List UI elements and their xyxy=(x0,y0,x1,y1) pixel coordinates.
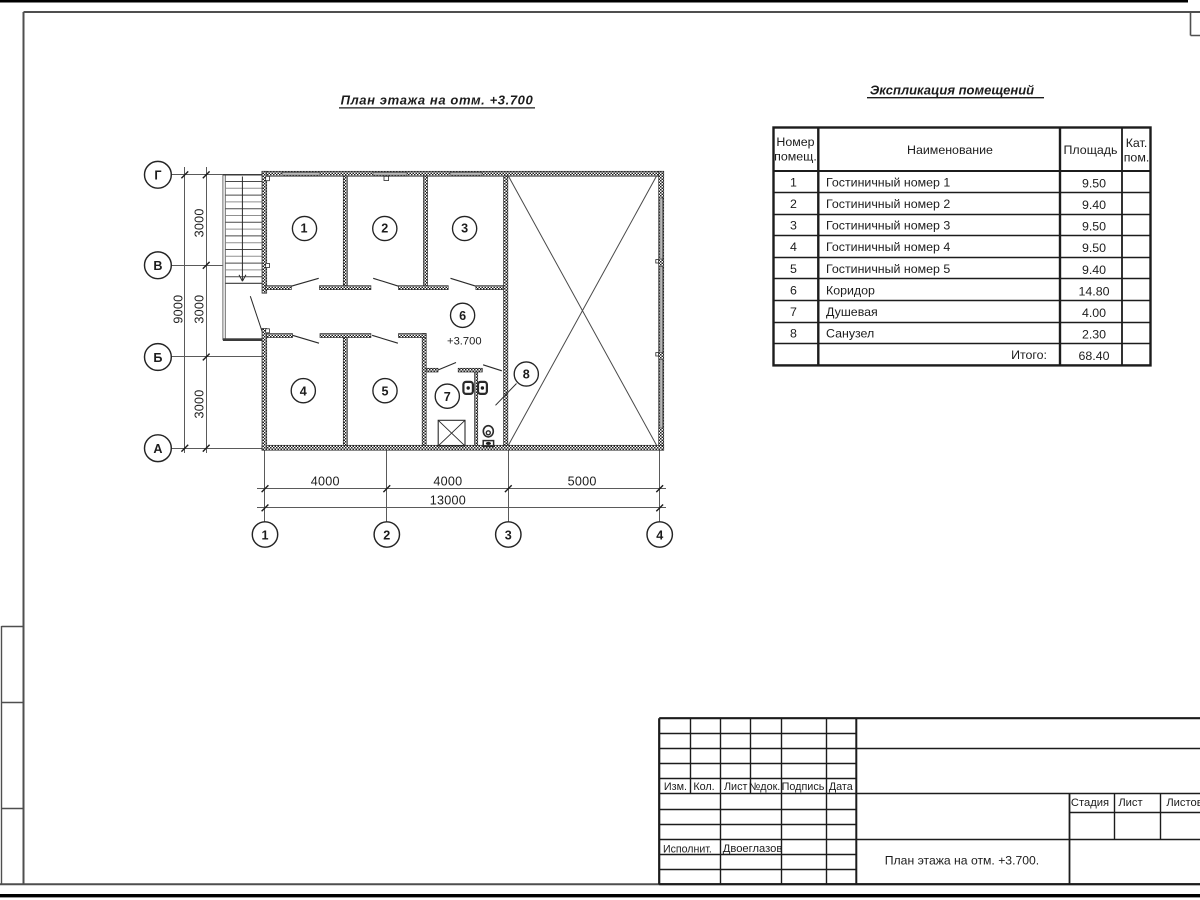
svg-text:6: 6 xyxy=(459,309,466,323)
svg-text:7: 7 xyxy=(790,305,797,319)
svg-text:4000: 4000 xyxy=(311,474,340,488)
svg-text:7: 7 xyxy=(444,390,451,404)
svg-text:9.50: 9.50 xyxy=(1082,220,1106,234)
svg-text:Кат.: Кат. xyxy=(1126,136,1148,150)
svg-text:Исполнит.: Исполнит. xyxy=(663,844,712,856)
svg-text:3000: 3000 xyxy=(192,295,206,324)
svg-text:4: 4 xyxy=(790,240,797,254)
svg-text:Дата: Дата xyxy=(829,781,853,793)
svg-text:5: 5 xyxy=(790,262,797,276)
svg-text:Б: Б xyxy=(153,351,162,365)
svg-text:Подпись: Подпись xyxy=(782,781,825,793)
svg-text:Наименование: Наименование xyxy=(907,143,993,157)
svg-text:68.40: 68.40 xyxy=(1078,349,1109,363)
svg-text:В: В xyxy=(153,259,162,273)
svg-text:Кол.: Кол. xyxy=(693,781,714,793)
svg-text:План этажа на отм. +3.700: План этажа на отм. +3.700 xyxy=(341,93,534,108)
svg-text:3000: 3000 xyxy=(192,208,206,237)
svg-text:Душевая: Душевая xyxy=(826,305,878,319)
svg-text:Лист: Лист xyxy=(724,781,748,793)
svg-text:Гостиничный номер 1: Гостиничный номер 1 xyxy=(826,175,950,189)
svg-text:помещ.: помещ. xyxy=(774,150,817,164)
svg-text:13000: 13000 xyxy=(430,494,466,508)
svg-text:1: 1 xyxy=(300,222,307,236)
svg-text:Номер: Номер xyxy=(776,135,814,149)
svg-text:9.50: 9.50 xyxy=(1082,176,1106,190)
svg-text:№док.: №док. xyxy=(749,781,781,793)
svg-text:2: 2 xyxy=(790,197,797,211)
svg-text:План этажа на отм. +3.700.: План этажа на отм. +3.700. xyxy=(885,854,1039,868)
svg-text:+3.700: +3.700 xyxy=(447,335,482,347)
svg-text:Гостиничный номер 5: Гостиничный номер 5 xyxy=(826,262,950,276)
svg-text:1: 1 xyxy=(790,175,797,189)
svg-text:3: 3 xyxy=(790,219,797,233)
svg-text:8: 8 xyxy=(523,368,530,382)
svg-text:6: 6 xyxy=(790,283,797,297)
svg-text:3: 3 xyxy=(505,528,512,542)
svg-text:2: 2 xyxy=(383,528,390,542)
svg-text:пом.: пом. xyxy=(1124,151,1150,165)
svg-text:9.50: 9.50 xyxy=(1082,241,1106,255)
svg-text:9000: 9000 xyxy=(172,295,186,324)
svg-text:А: А xyxy=(153,442,162,456)
svg-text:Стадия: Стадия xyxy=(1071,797,1109,809)
svg-text:8: 8 xyxy=(790,327,797,341)
svg-text:4.00: 4.00 xyxy=(1082,306,1106,320)
svg-text:Двоеглазов: Двоеглазов xyxy=(723,843,783,855)
svg-text:Итого:: Итого: xyxy=(1011,348,1047,362)
svg-text:2.30: 2.30 xyxy=(1082,328,1106,342)
svg-text:Коридор: Коридор xyxy=(826,283,875,297)
svg-text:Листов: Листов xyxy=(1166,797,1200,809)
svg-text:5000: 5000 xyxy=(568,474,597,488)
svg-text:5: 5 xyxy=(381,384,388,398)
svg-text:Гостиничный номер 4: Гостиничный номер 4 xyxy=(826,240,950,254)
svg-text:Экспликация помещений: Экспликация помещений xyxy=(870,83,1034,98)
svg-text:Лист: Лист xyxy=(1118,797,1142,809)
svg-text:3000: 3000 xyxy=(192,389,206,418)
svg-text:Гостиничный номер 2: Гостиничный номер 2 xyxy=(826,197,950,211)
svg-text:4: 4 xyxy=(656,528,663,542)
svg-text:Г: Г xyxy=(154,169,161,183)
svg-text:4000: 4000 xyxy=(433,474,462,488)
svg-text:9.40: 9.40 xyxy=(1082,263,1106,277)
svg-text:Изм.: Изм. xyxy=(664,781,687,793)
svg-text:2: 2 xyxy=(381,222,388,236)
svg-text:Гостиничный номер 3: Гостиничный номер 3 xyxy=(826,219,950,233)
svg-text:9.40: 9.40 xyxy=(1082,198,1106,212)
svg-text:1: 1 xyxy=(261,528,268,542)
svg-text:14.80: 14.80 xyxy=(1078,284,1109,298)
svg-text:Площадь: Площадь xyxy=(1064,143,1118,157)
svg-text:4: 4 xyxy=(300,384,307,398)
svg-text:Санузел: Санузел xyxy=(826,327,874,341)
svg-text:3: 3 xyxy=(461,222,468,236)
